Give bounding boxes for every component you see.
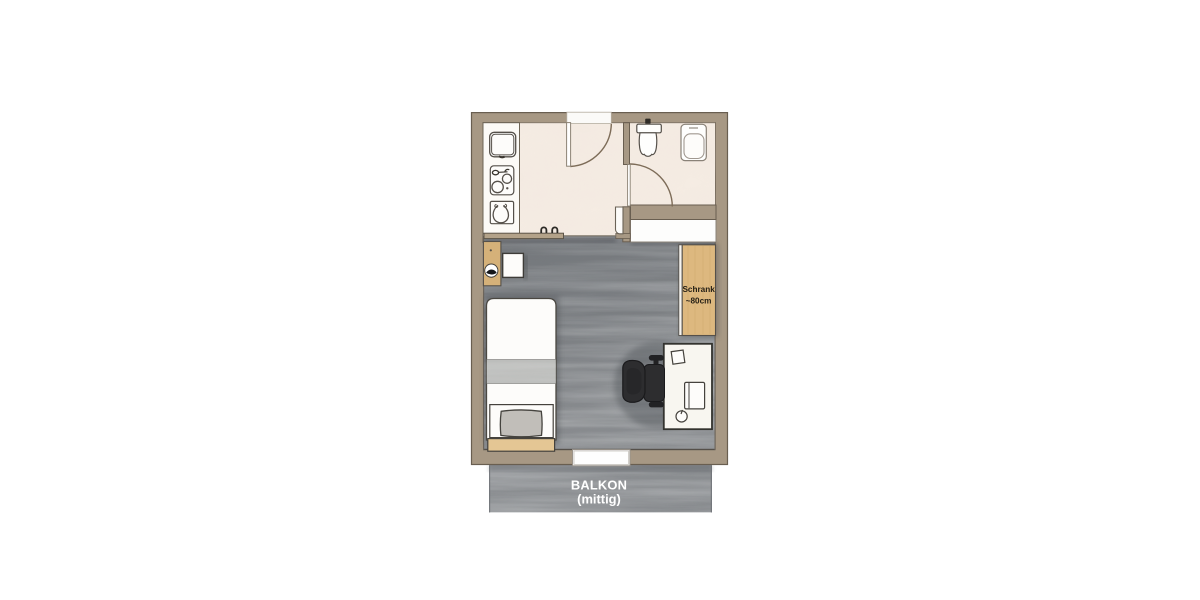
svg-text:(mittig): (mittig): [577, 491, 621, 506]
svg-text:BALKON: BALKON: [571, 477, 627, 492]
svg-text:Schrank: Schrank: [682, 285, 715, 294]
svg-text:~80cm: ~80cm: [686, 297, 712, 306]
